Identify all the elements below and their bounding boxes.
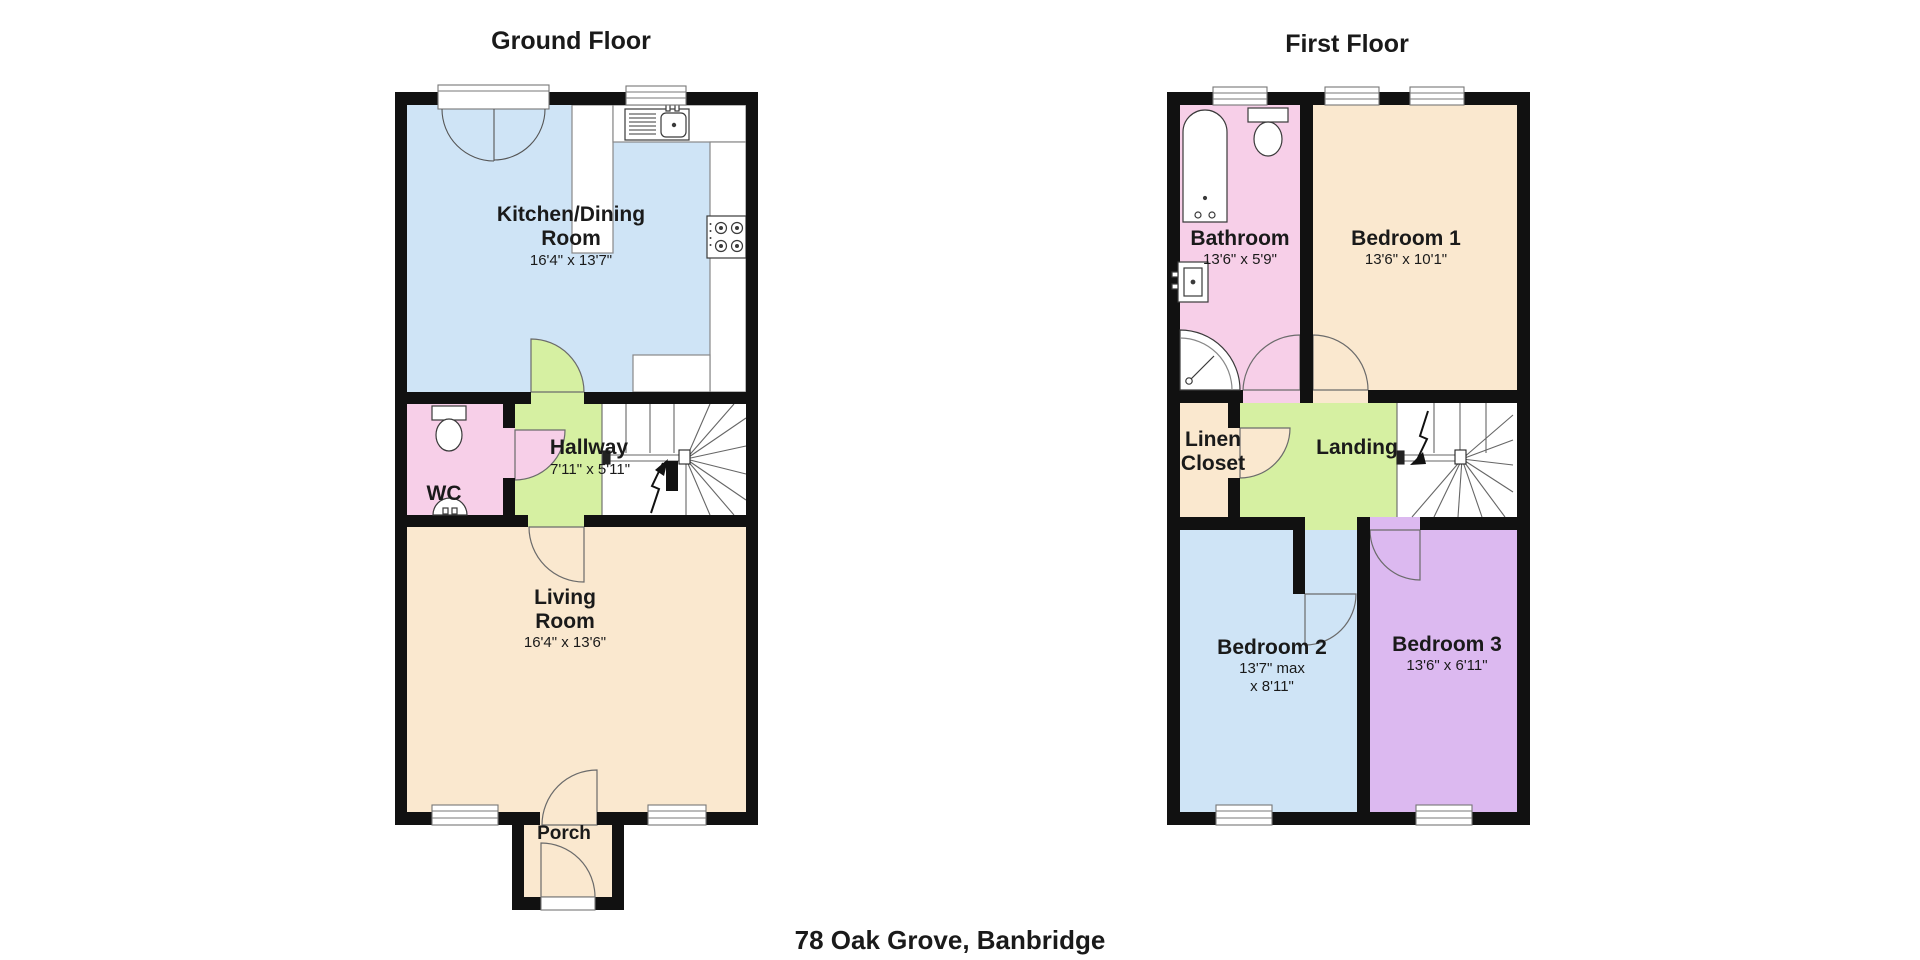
bedroom1-doorway [1313, 390, 1368, 403]
room-dims-bedroom2: 13'7" max x 8'11" [1239, 660, 1305, 696]
room-label-landing: Landing [1316, 436, 1398, 460]
room-label-kitchen: Kitchen/Dining Room [497, 203, 645, 251]
living-window-left-icon [432, 805, 498, 825]
room-label-bedroom1: Bedroom 1 [1351, 227, 1461, 251]
kitchen-hob-icon [707, 216, 746, 258]
room-label-bathroom: Bathroom [1190, 227, 1289, 251]
bathroom-doorway [1243, 390, 1300, 403]
wc-doorway [503, 428, 515, 478]
room-dims-kitchen: 16'4" x 13'7" [530, 252, 612, 270]
kitchen-sink-icon [625, 103, 689, 140]
room-label-linen-closet: Linen Closet [1181, 428, 1245, 476]
room-dims-bedroom3: 13'6" x 6'11" [1406, 657, 1487, 675]
kitchen-window-icon [626, 86, 686, 105]
room-label-porch: Porch [537, 823, 591, 844]
first-floor-title: First Floor [1285, 31, 1409, 58]
room-dims-hallway: 7'11" x 5'11" [550, 461, 630, 479]
room-label-living: Living Room [534, 586, 596, 634]
bedroom1-window-left-icon [1325, 87, 1379, 105]
kitchen-doorway [531, 392, 584, 404]
floorplan-drawing [0, 0, 1920, 960]
property-address: 78 Oak Grove, Banbridge [795, 925, 1106, 956]
room-dims-bedroom1: 13'6" x 10'1" [1365, 251, 1447, 269]
bedroom1-window-right-icon [1410, 87, 1464, 105]
room-dims-bathroom: 13'6" x 5'9" [1203, 251, 1277, 269]
living-window-right-icon [648, 805, 706, 825]
room-label-bedroom3: Bedroom 3 [1392, 633, 1502, 657]
room-label-wc: WC [427, 482, 462, 506]
room-label-hallway: Hallway [550, 436, 628, 460]
bathroom-window-icon [1213, 87, 1267, 105]
bedroom3-window-icon [1416, 805, 1472, 825]
bedroom3-doorway [1370, 517, 1420, 530]
floorplan-page: Ground Floor First Floor Kitchen/Dining … [0, 0, 1920, 960]
ground-floor-title: Ground Floor [491, 28, 651, 55]
front-door-threshold [541, 897, 595, 910]
room-dims-living: 16'4" x 13'6" [524, 634, 606, 652]
bedroom2-window-icon [1216, 805, 1272, 825]
bathtub-icon [1183, 110, 1227, 222]
room-label-bedroom2: Bedroom 2 [1217, 636, 1327, 660]
living-doorway [528, 515, 584, 527]
